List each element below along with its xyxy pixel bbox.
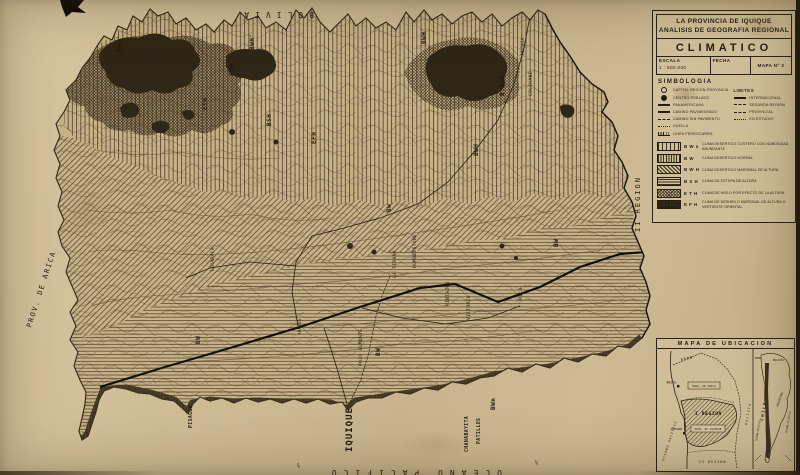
legend-swatch-eth <box>657 189 681 198</box>
symbol-label: SEGUNDA REGION <box>749 103 785 107</box>
fecha-label: FECHA <box>711 57 751 74</box>
symbol-row: CAMINO PAVIMENTADO <box>657 108 733 115</box>
coast-town-label: PATILLOS <box>476 418 482 444</box>
symbol-label: PANAMERICANA <box>673 103 704 107</box>
zone-label: EFH <box>311 132 318 144</box>
symbol-row: CENTRO POBLADO <box>657 94 733 101</box>
photo-edge-bottom <box>0 471 800 475</box>
legend-row: B W H CLIMA DESERTICO MARGINAL DE ALTURA <box>657 165 791 174</box>
zone-label: BW <box>553 239 560 247</box>
inset-region-i-label: I REGION <box>695 411 722 417</box>
inset-arica-dot <box>677 385 679 387</box>
camino-sin-pavimento-icon <box>657 119 670 120</box>
inset-peru-label: PERU <box>680 355 693 362</box>
symbol-label: PROVINCIAL <box>749 110 773 114</box>
symbol-row: CAPITAL REGION-PROVINCIA <box>657 87 733 94</box>
legend-swatch-bsh <box>657 177 681 186</box>
capital-icon <box>657 87 670 93</box>
symbol-row: EN ESTUDIO <box>733 116 791 123</box>
inset-title: MAPA DE UBICACION <box>657 339 794 349</box>
simbologia-columns: CAPITAL REGION-PROVINCIA CENTRO POBLADO … <box>657 87 791 137</box>
zone-label: BW <box>195 336 202 344</box>
legend-code: E T H <box>684 191 702 196</box>
symbol-row: LINEA FERROCARRIL <box>657 130 733 137</box>
legend-row: B W n CLIMA DESERTICO COSTERO CON NUBOSI… <box>657 142 791 151</box>
inset-bolivia-label: BOLIVIA <box>744 402 752 425</box>
inset-southamerica-map: PERU BOLIVIA CHILE ARGENTINA OCEANO ATLA… <box>755 353 792 462</box>
legend-row: E F H CLIMA DE DESHIELO MARGINAL DE ALTU… <box>657 200 791 209</box>
simbologia-title: SIMBOLOGIA <box>658 79 790 85</box>
limites-title: LIMITES <box>733 87 791 94</box>
legend-label: CLIMA DESERTICO NORMAL <box>702 156 753 160</box>
legend-code: B W H <box>684 167 702 172</box>
coast-town-label: PISAGUA <box>188 405 194 428</box>
zone-label: ETH <box>202 98 209 110</box>
symbol-label: EN ESTUDIO <box>749 117 773 121</box>
map-subject-title: CLIMATICO <box>656 39 792 57</box>
escala-value: 1 : 500.000 <box>659 65 708 70</box>
zone-label: BWH <box>473 144 480 156</box>
inset-sa-peru-label: PERU <box>755 356 762 360</box>
symbol-row: HUELLA <box>657 123 733 130</box>
legend-swatch-efh <box>657 200 681 209</box>
symbol-label: CAPITAL REGION-PROVINCIA <box>673 88 729 92</box>
zone-label: BWH' <box>116 36 123 52</box>
inset-sa-pacifico-label: OCEANO PACIFICO <box>755 420 762 442</box>
fold-mark: ½ <box>535 459 538 466</box>
edge-label-region-ii: II REGION <box>634 176 642 232</box>
title-legend-panel: LA PROVINCIA DE IQUIQUE ANALISIS DE GEOG… <box>652 10 796 223</box>
zone-label: EFH <box>229 64 236 76</box>
symbol-row: INTERNACIONAL <box>733 94 791 101</box>
town-label: POZO ALMONTE <box>358 329 364 366</box>
camino-pavimentado-icon <box>657 111 670 112</box>
legend-code: B W <box>684 156 702 161</box>
inset-region-map: PERU ARICA PROV. DE ARICA I REGION IQUIQ… <box>661 351 752 469</box>
inset-corner-marks <box>755 455 791 461</box>
escala-label: ESCALA <box>659 58 708 63</box>
symbol-label: INTERNACIONAL <box>749 96 781 100</box>
zone-label: BWn <box>490 398 497 410</box>
coast-town-label: CHANABAYITA <box>464 416 470 452</box>
coast-town-labels: PISAGUA CHANABAYITA PATILLOS <box>188 405 482 452</box>
province-map <box>40 0 680 475</box>
inset-prov-arica-label: PROV. DE ARICA <box>692 384 716 388</box>
legend-label: CLIMA DESERTICO MARGINAL DE ALTURA <box>702 168 778 172</box>
map-meta-row: ESCALA 1 : 500.000 FECHA MAPA Nº 3 <box>656 57 792 75</box>
symbol-row: PANAMERICANA <box>657 101 733 108</box>
inset-sa-argentina-label: ARGENTINA <box>775 391 784 407</box>
map-title-line2: ANALISIS DE GEOGRAFIA REGIONAL <box>658 26 790 35</box>
fold-mark: ½ <box>297 462 300 469</box>
legend-label: CLIMA DE DESHIELO MARGINAL DE ALTURA O V… <box>702 200 791 209</box>
zone-label: BWH' <box>421 28 428 44</box>
location-inset: MAPA DE UBICACION PERU ARICA <box>656 338 795 472</box>
climate-legend: B W n CLIMA DESERTICO COSTERO CON NUBOSI… <box>657 142 791 209</box>
huella-icon <box>657 126 670 127</box>
panamericana-line-icon <box>657 104 670 106</box>
inset-iquique-dot <box>683 432 685 434</box>
symbol-label: CAMINO SIN PAVIMENTO <box>673 117 720 121</box>
inset-arica-label: ARICA <box>666 381 676 385</box>
legend-code: B W n <box>684 144 702 149</box>
legend-row: B S H CLIMA DE ESTEPA DE ALTURA <box>657 177 791 186</box>
legend-row: B W CLIMA DESERTICO NORMAL <box>657 154 791 163</box>
legend-swatch-bwh <box>657 165 681 174</box>
town-label: TARAPACA <box>210 247 216 272</box>
symbol-row: SEGUNDA REGION <box>733 101 791 108</box>
legend-row: E T H CLIMA DE HIELO POR EFECTO DE LA AL… <box>657 189 791 198</box>
legend-label: CLIMA DE ESTEPA DE ALTURA <box>702 179 757 183</box>
centro-poblado-icon <box>657 95 670 101</box>
symbol-label: HUELLA <box>673 124 688 128</box>
legend-code: E F H <box>684 202 702 207</box>
edge-label-prov-arica: PROV. DE ARICA <box>25 250 57 329</box>
symbol-label: CENTRO POBLADO <box>673 96 709 100</box>
zone-label: B.S.H <box>499 75 506 96</box>
town-label: HUARA <box>297 318 303 334</box>
town-label: COLCHANE <box>528 71 534 96</box>
ferrocarril-icon <box>657 132 670 136</box>
limite-estudio-icon <box>733 119 746 120</box>
town-label: PINTADOS <box>445 281 451 306</box>
symbol-row: PROVINCIAL <box>733 108 791 115</box>
town-label: ISLUGA <box>520 37 526 56</box>
town-label: LA TIRANA <box>392 250 398 278</box>
symbol-label: LINEA FERROCARRIL <box>673 132 713 136</box>
town-label: PICA <box>518 288 524 300</box>
legend-code: B S H <box>684 179 702 184</box>
inset-chile-sliver <box>765 363 771 459</box>
zone-label: BSH <box>266 114 273 126</box>
ink-blot <box>60 0 86 17</box>
limite-provincial-icon <box>733 112 746 113</box>
symbol-row: CAMINO SIN PAVIMENTO <box>657 116 733 123</box>
inset-prov-iquique-label: PROV. DE IQUIQUE <box>695 427 722 431</box>
scanned-climate-map: BWH' BWH' BWH' EFH ETH BSH EFH B.S.H BWH… <box>0 0 800 475</box>
inset-region-i-shape <box>681 399 737 446</box>
edge-label-iquique: IQUIQUE <box>345 407 355 452</box>
zone-label: BW <box>375 348 382 356</box>
inset-maps: PERU ARICA PROV. DE ARICA I REGION IQUIQ… <box>657 349 794 469</box>
legend-swatch-bwn <box>657 142 681 151</box>
symbol-label: CAMINO PAVIMENTADO <box>673 110 717 114</box>
inset-sa-atlantico-label: OCEANO ATLANTICO <box>785 410 792 433</box>
limite-internacional-icon <box>733 97 746 99</box>
edge-label-bolivia: BOLIVIA <box>238 10 314 19</box>
zone-label: BWH' <box>249 34 256 50</box>
mapa-number: MAPA Nº 3 <box>751 57 791 74</box>
limite-region-icon <box>733 104 746 105</box>
inset-region-ii-border <box>687 450 737 453</box>
map-title-box: LA PROVINCIA DE IQUIQUE ANALISIS DE GEOG… <box>656 14 792 39</box>
photo-edge-right <box>796 0 800 475</box>
legend-label: CLIMA DE HIELO POR EFECTO DE LA ALTURA <box>702 191 785 195</box>
legend-swatch-bw <box>657 154 681 163</box>
zone-label: BW <box>386 204 393 212</box>
town-label: HUMBERSTONE <box>412 234 418 268</box>
legend-label: CLIMA DESERTICO COSTERO CON NUBOSIDAD AB… <box>702 142 791 151</box>
inset-region-ii-label: II REGION <box>699 460 726 464</box>
inset-sa-bolivia-label: BOLIVIA <box>773 358 784 362</box>
town-label: VICTORIA <box>466 295 472 320</box>
map-title-line1: LA PROVINCIA DE IQUIQUE <box>658 17 790 26</box>
